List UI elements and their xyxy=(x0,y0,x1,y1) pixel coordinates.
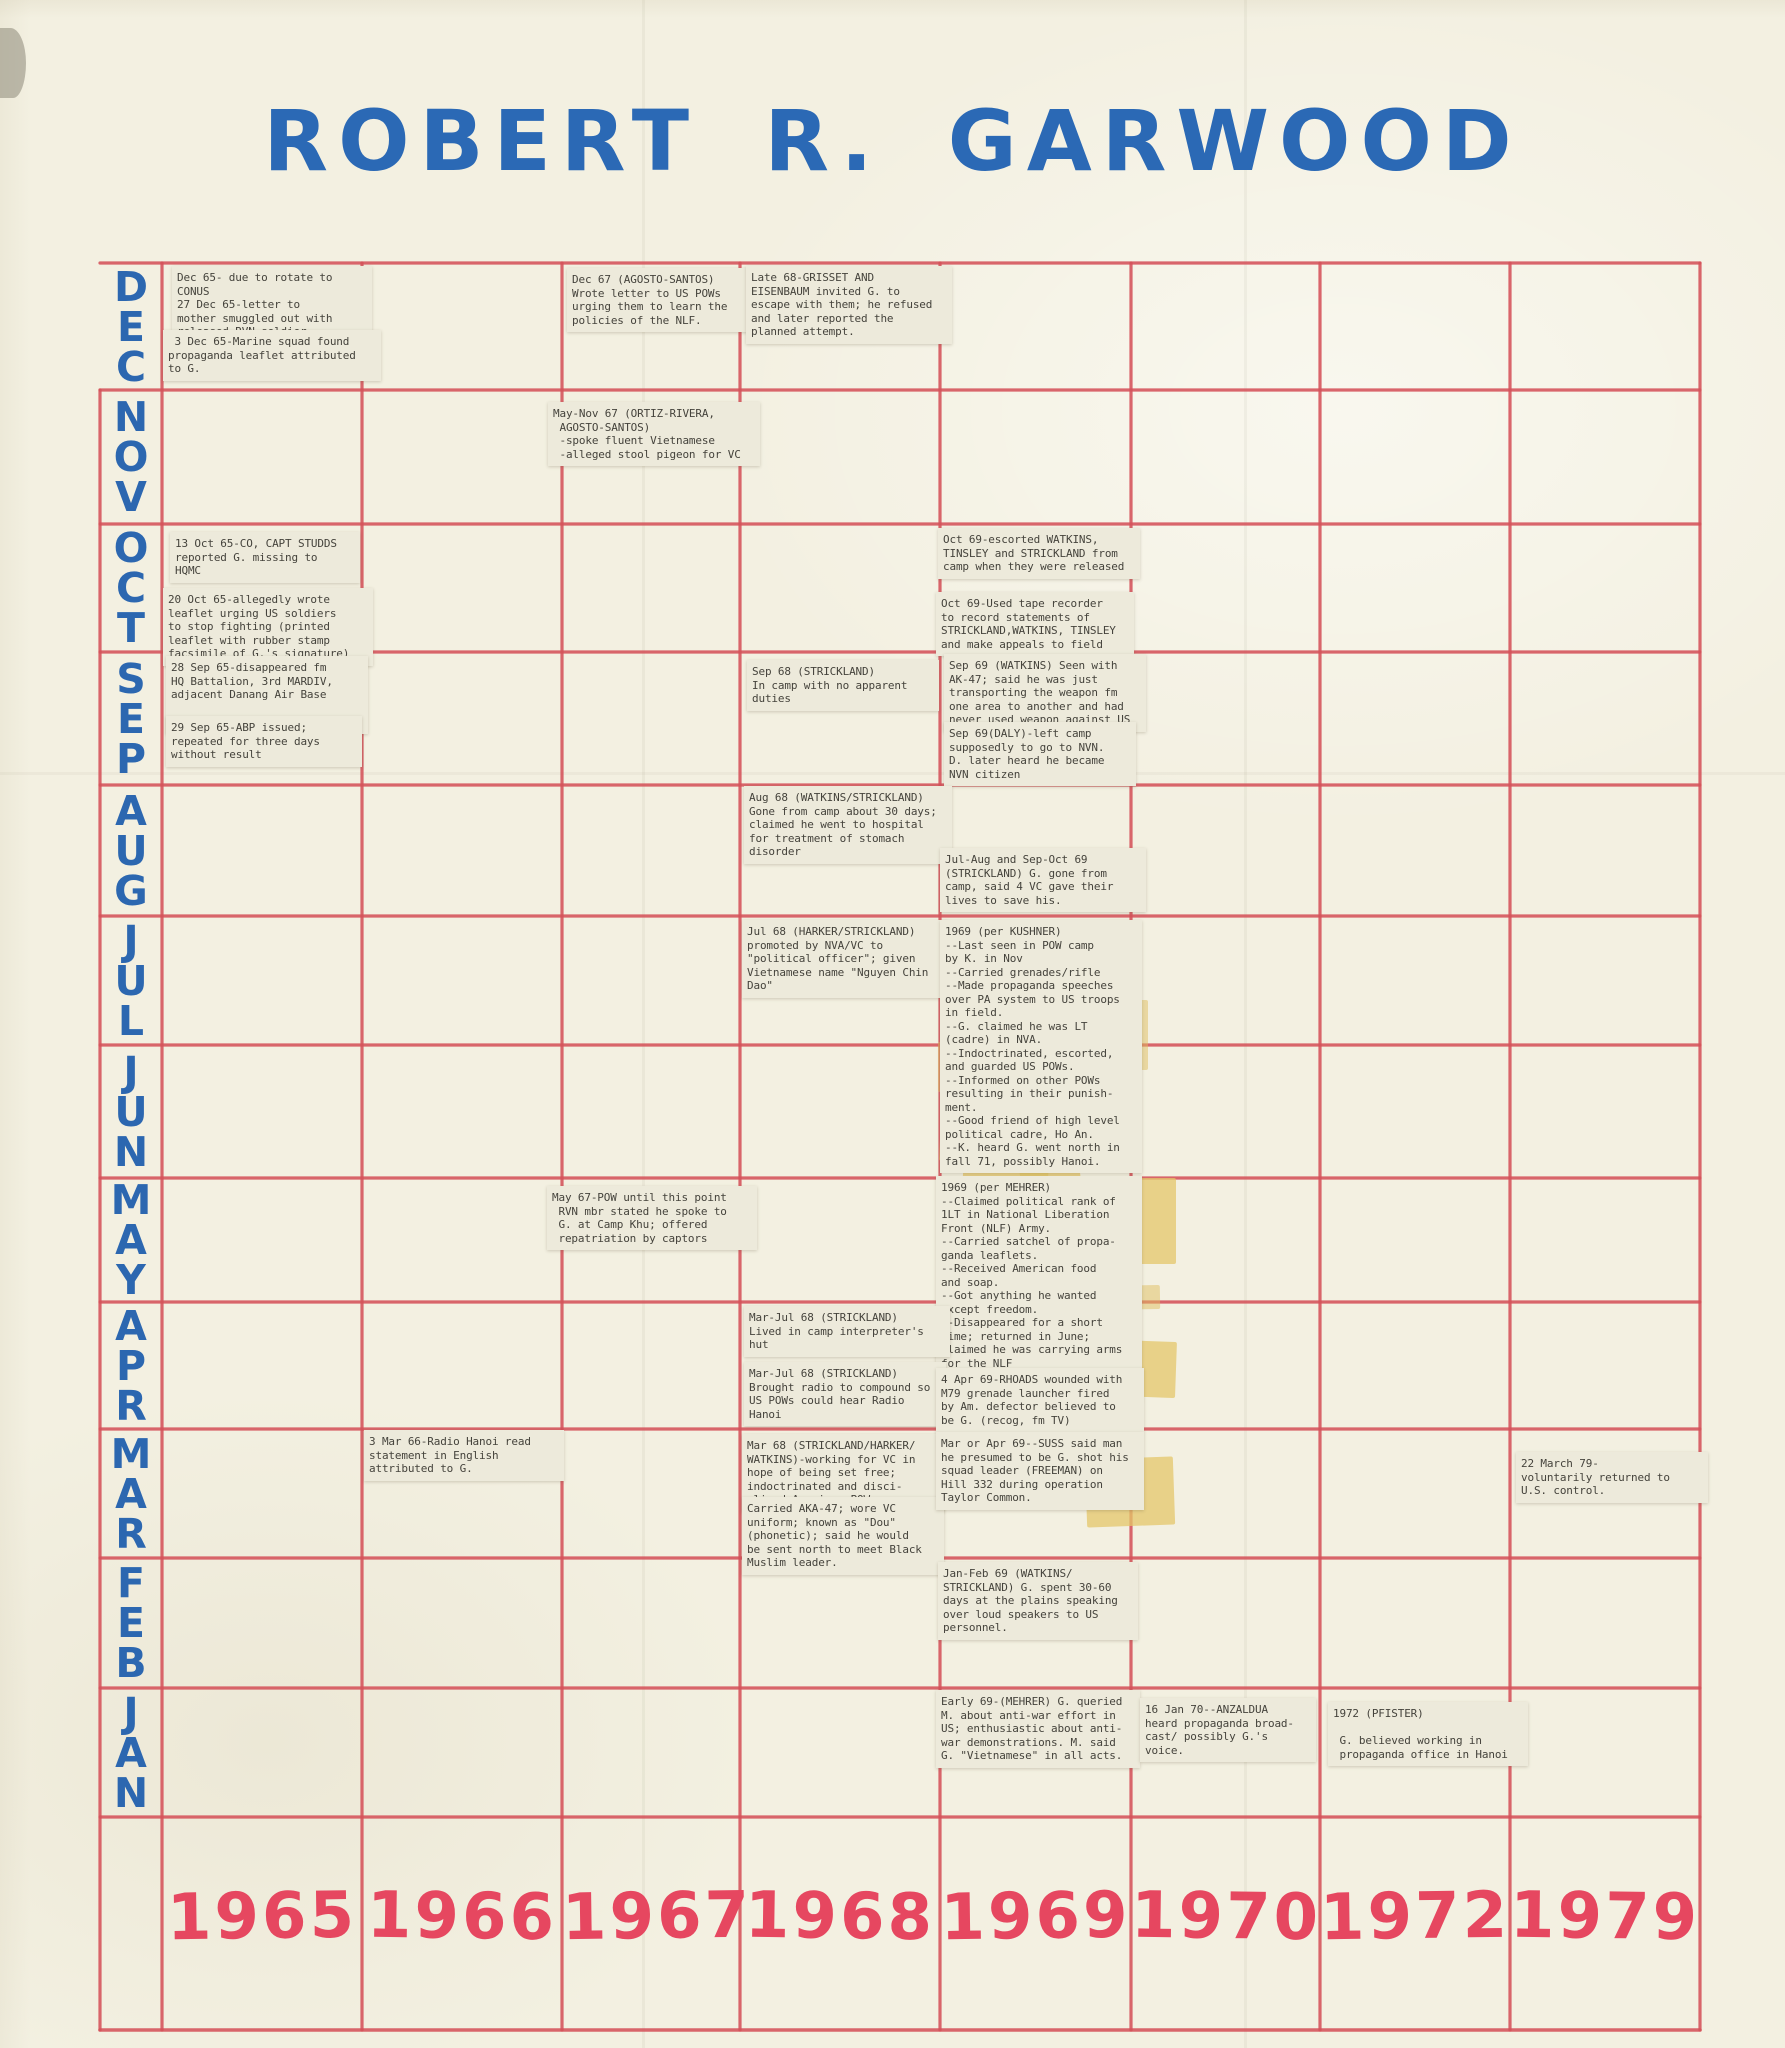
note-may67-camp-khu: May 67-POW until this point RVN mbr stat… xyxy=(547,1186,757,1250)
note-maynov67-vietnamese: May-Nov 67 (ORTIZ-RIVERA, AGOSTO-SANTOS)… xyxy=(548,402,760,466)
month-letter: R xyxy=(115,1386,147,1426)
month-letter: M xyxy=(111,1180,152,1220)
note-pfister-1972: 1972 (PFISTER) G. believed working in pr… xyxy=(1328,1702,1528,1766)
note-sep65-abp: 29 Sep 65-ABP issued; repeated for three… xyxy=(166,716,362,767)
month-label-feb: FEB xyxy=(100,1558,162,1688)
month-letter: N xyxy=(114,1132,148,1172)
note-sep69-ak47: Sep 69 (WATKINS) Seen with AK-47; said h… xyxy=(944,654,1146,732)
year-label-1967: 1967 xyxy=(561,1879,740,1955)
note-aug68-hospital: Aug 68 (WATKINS/STRICKLAND) Gone from ca… xyxy=(744,786,952,864)
note-sep69-daly: Sep 69(DALY)-left camp supposedly to go … xyxy=(944,722,1136,786)
month-letter: Y xyxy=(116,1260,146,1300)
month-label-jun: JUN xyxy=(100,1045,162,1178)
timeline-poster: ROBERT R. GARWOOD DECNOVOCTSEPAUGJULJUNM… xyxy=(0,0,1785,2048)
note-sep68-no-duties: Sep 68 (STRICKLAND) In camp with no appa… xyxy=(747,660,939,711)
month-letter: O xyxy=(114,437,149,477)
month-letter: F xyxy=(117,1563,145,1603)
month-label-dec: DEC xyxy=(100,263,162,390)
year-label-1965: 1965 xyxy=(161,1879,362,1956)
note-apr69-rhoads: 4 Apr 69-RHOADS wounded with M79 grenade… xyxy=(936,1368,1144,1432)
month-letter: D xyxy=(114,267,148,307)
month-letter: E xyxy=(117,307,145,347)
note-mar66-radio-hanoi: 3 Mar 66-Radio Hanoi read statement in E… xyxy=(364,1430,564,1481)
month-letter: O xyxy=(114,528,149,568)
note-kushner-1969: 1969 (per KUSHNER) --Last seen in POW ca… xyxy=(940,920,1142,1173)
month-letter: N xyxy=(114,1773,148,1813)
month-letter: U xyxy=(114,1092,147,1132)
note-marapr69-suss: Mar or Apr 69--SUSS said man he presumed… xyxy=(936,1432,1144,1510)
month-letter: M xyxy=(111,1434,152,1474)
month-label-jan: JAN xyxy=(100,1688,162,1817)
month-letter: A xyxy=(115,1306,147,1346)
month-letter: R xyxy=(115,1514,147,1554)
note-oct65-leaflet: 20 Oct 65-allegedly wrote leaflet urging… xyxy=(163,588,373,666)
month-label-aug: AUG xyxy=(100,785,162,916)
month-letter: U xyxy=(114,831,147,871)
year-label-1972: 1972 xyxy=(1319,1879,1510,1956)
month-label-sep: SEP xyxy=(100,652,162,785)
note-mar79-returned: 22 March 79- voluntarily returned to U.S… xyxy=(1516,1452,1708,1503)
note-dec65-leaflet: 3 Dec 65-Marine squad found propaganda l… xyxy=(163,330,381,381)
note-julaug69-gone: Jul-Aug and Sep-Oct 69 (STRICKLAND) G. g… xyxy=(940,848,1146,912)
note-oct65-missing: 13 Oct 65-CO, CAPT STUDDS reported G. mi… xyxy=(170,532,360,583)
year-label-1968: 1968 xyxy=(739,1879,940,1956)
note-janfeb69-plains: Jan-Feb 69 (WATKINS/ STRICKLAND) G. spen… xyxy=(938,1562,1138,1640)
month-label-mar: MAR xyxy=(100,1429,162,1558)
month-letter: N xyxy=(114,397,148,437)
note-marjul68-hut: Mar-Jul 68 (STRICKLAND) Lived in camp in… xyxy=(744,1306,950,1357)
month-letter: J xyxy=(123,1693,138,1733)
year-label-1966: 1966 xyxy=(361,1879,562,1956)
month-letter: A xyxy=(115,1220,147,1260)
month-label-oct: OCT xyxy=(100,524,162,652)
note-marjul68-radio: Mar-Jul 68 (STRICKLAND) Brought radio to… xyxy=(744,1362,946,1426)
month-letter: V xyxy=(115,477,147,517)
note-mar68-aka47: Carried AKA-47; wore VC uniform; known a… xyxy=(742,1497,944,1575)
note-dec67-letter: Dec 67 (AGOSTO-SANTOS) Wrote letter to U… xyxy=(567,268,761,332)
month-letter: G xyxy=(114,871,148,911)
month-letter: E xyxy=(117,1603,145,1643)
month-label-apr: APR xyxy=(100,1302,162,1429)
note-oct69-escorted: Oct 69-escorted WATKINS, TINSLEY and STR… xyxy=(938,528,1140,579)
note-early69-antiwar: Early 69-(MEHRER) G. queried M. about an… xyxy=(936,1690,1140,1768)
month-letter: P xyxy=(116,1346,146,1386)
note-jul68-political-officer: Jul 68 (HARKER/STRICKLAND) promoted by N… xyxy=(742,920,948,998)
month-label-may: MAY xyxy=(100,1178,162,1302)
month-letter: B xyxy=(115,1643,146,1683)
month-letter: L xyxy=(118,1001,144,1041)
month-letter: A xyxy=(115,1733,147,1773)
month-label-nov: NOV xyxy=(100,390,162,524)
month-letter: T xyxy=(117,608,145,648)
month-letter: C xyxy=(116,347,146,387)
note-late68-escape: Late 68-GRISSET AND EISENBAUM invited G.… xyxy=(746,266,952,344)
month-letter: S xyxy=(116,659,146,699)
month-letter: A xyxy=(115,1474,147,1514)
month-label-jul: JUL xyxy=(100,916,162,1045)
month-letter: C xyxy=(116,568,146,608)
year-label-1969: 1969 xyxy=(939,1879,1131,1956)
year-label-1970: 1970 xyxy=(1130,1879,1320,1956)
note-oct69-tape-recorder: Oct 69-Used tape recorder to record stat… xyxy=(936,592,1134,656)
note-jan70-anzaldua: 16 Jan 70--ANZALDUA heard propaganda bro… xyxy=(1140,1698,1316,1762)
month-letter: P xyxy=(116,739,146,779)
month-letter: J xyxy=(123,921,138,961)
year-label-1979: 1979 xyxy=(1509,1879,1700,1956)
month-letter: E xyxy=(117,699,145,739)
month-letter: U xyxy=(114,961,147,1001)
month-letter: A xyxy=(115,791,147,831)
month-letter: J xyxy=(123,1052,138,1092)
